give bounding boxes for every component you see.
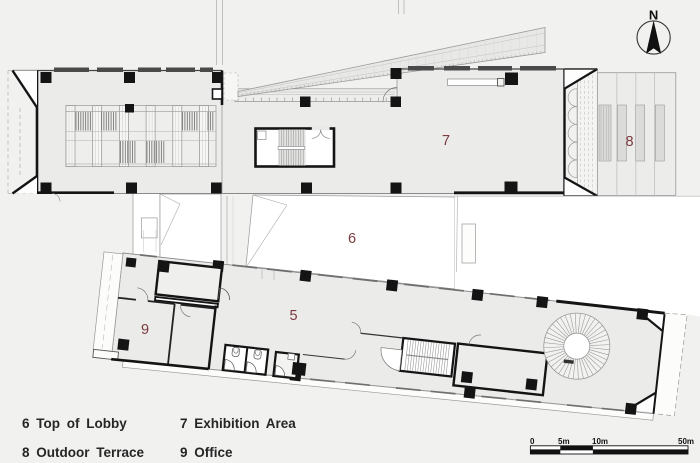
svg-text:8: 8: [625, 134, 633, 150]
svg-text:50m: 50m: [678, 437, 694, 446]
svg-text:10m: 10m: [592, 437, 608, 446]
svg-text:0: 0: [530, 437, 535, 446]
svg-text:5: 5: [289, 308, 297, 324]
svg-text:5m: 5m: [558, 437, 570, 446]
svg-text:7: 7: [442, 133, 450, 149]
svg-text:8 Outdoor Terrace: 8 Outdoor Terrace: [22, 445, 145, 460]
svg-text:7 Exhibition Area: 7 Exhibition Area: [180, 416, 296, 431]
svg-text:9: 9: [141, 322, 149, 338]
svg-text:6 Top of Lobby: 6 Top of Lobby: [22, 416, 127, 431]
svg-text:6: 6: [348, 231, 356, 247]
svg-text:9 Office: 9 Office: [180, 445, 233, 460]
svg-text:N: N: [649, 8, 658, 23]
